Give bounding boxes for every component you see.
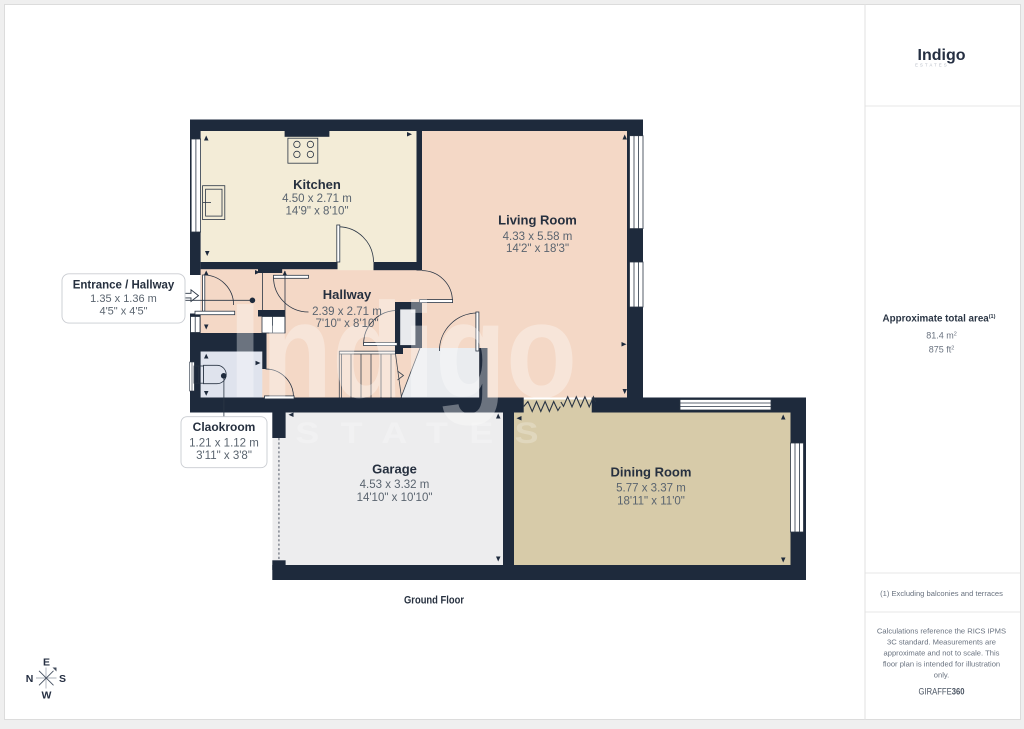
svg-text:GIRAFFE360: GIRAFFE360 <box>919 687 965 697</box>
svg-text:Living Room: Living Room <box>498 213 577 228</box>
svg-text:approximate and not to scale.: approximate and not to scale. This <box>884 649 1000 658</box>
svg-text:4.53 x 3.32 m: 4.53 x 3.32 m <box>360 479 430 491</box>
svg-text:ESTATES: ESTATES <box>915 63 949 68</box>
svg-text:Kitchen: Kitchen <box>293 177 341 192</box>
svg-text:2.39 x 2.71 m: 2.39 x 2.71 m <box>312 306 382 318</box>
svg-text:1.35 x 1.36 m: 1.35 x 1.36 m <box>90 293 157 305</box>
svg-text:1.21 x 1.12 m: 1.21 x 1.12 m <box>189 438 259 450</box>
svg-text:875 ft2: 875 ft2 <box>929 345 955 355</box>
svg-text:14'9" x 8'10": 14'9" x 8'10" <box>285 206 348 218</box>
svg-text:3C standard. Measurements are: 3C standard. Measurements are <box>887 638 996 647</box>
svg-text:only.: only. <box>934 671 949 680</box>
svg-text:N: N <box>26 673 34 685</box>
svg-text:S: S <box>59 673 66 685</box>
svg-text:14'10" x 10'10": 14'10" x 10'10" <box>357 492 433 504</box>
svg-text:3'11" x 3'8": 3'11" x 3'8" <box>196 450 252 462</box>
svg-text:E: E <box>43 657 50 669</box>
svg-text:Entrance / Hallway: Entrance / Hallway <box>73 280 175 292</box>
svg-text:4'5" x 4'5": 4'5" x 4'5" <box>99 305 147 317</box>
svg-text:81.4 m2: 81.4 m2 <box>926 331 957 341</box>
svg-text:Calculations reference the RIC: Calculations reference the RICS IPMS <box>877 627 1006 636</box>
svg-text:5.77 x 3.37 m: 5.77 x 3.37 m <box>616 483 686 495</box>
svg-text:(1) Excluding balconies and te: (1) Excluding balconies and terraces <box>880 589 1003 598</box>
svg-text:Garage: Garage <box>372 462 417 477</box>
svg-text:Claokroom: Claokroom <box>193 420 256 434</box>
svg-text:Hallway: Hallway <box>323 287 372 302</box>
svg-text:ESTATES: ESTATES <box>250 417 560 450</box>
svg-text:W: W <box>42 690 52 702</box>
svg-text:Approximate total area(1): Approximate total area(1) <box>883 314 996 325</box>
svg-text:Ground Floor: Ground Floor <box>404 595 465 607</box>
svg-text:Indigo: Indigo <box>918 47 966 64</box>
svg-text:floor plan is intended for ill: floor plan is intended for illustration <box>883 660 1000 669</box>
svg-text:Indigo: Indigo <box>229 275 577 426</box>
svg-text:4.50 x 2.71 m: 4.50 x 2.71 m <box>282 193 352 205</box>
svg-text:14'2" x 18'3": 14'2" x 18'3" <box>506 243 569 255</box>
svg-text:18'11" x 11'0": 18'11" x 11'0" <box>617 496 685 508</box>
svg-text:7'10" x 8'10": 7'10" x 8'10" <box>315 318 378 330</box>
svg-text:4.33 x 5.58 m: 4.33 x 5.58 m <box>503 231 573 243</box>
svg-text:Dining Room: Dining Room <box>611 465 692 480</box>
